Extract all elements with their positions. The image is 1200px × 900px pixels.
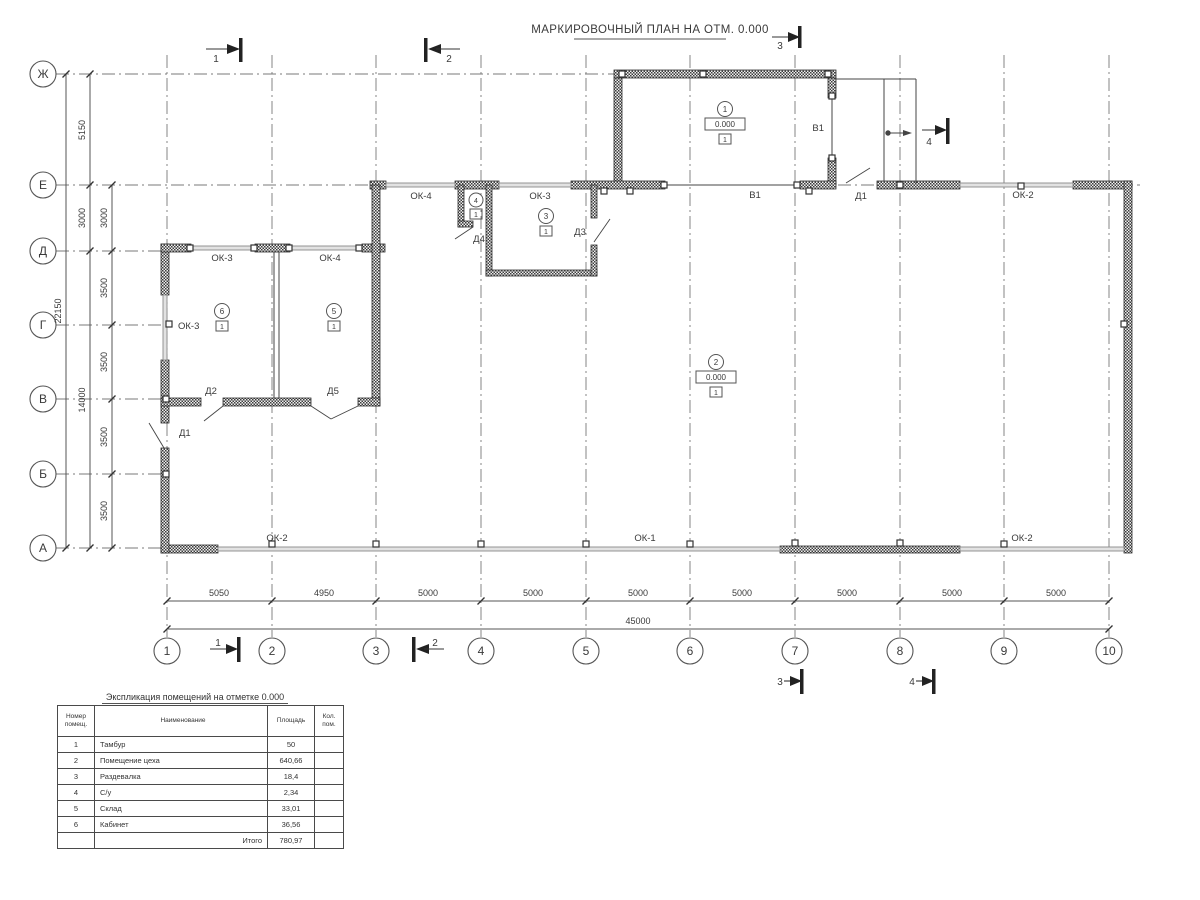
col-bubble-labels: 1 2 3 4 5 6 7 8 9 10 [164,644,1116,658]
explication-table: Номер помещ. Наименование Площадь Кол. п… [57,705,344,849]
label-d1-left: Д1 [179,428,191,439]
room-number: 6 [220,307,225,316]
label-d3: Д3 [574,227,586,238]
row-label: В [39,392,47,406]
section-number: 2 [432,638,438,649]
window-ok2-top [960,183,1073,187]
room-elevation: 0.000 [715,120,736,129]
room-number: 4 [474,198,478,205]
entrance-arrow [886,130,912,136]
label-ok3-room6: ОК-3 [211,253,232,264]
room-elevation: 0.000 [706,373,727,382]
floor-type: 1 [714,390,718,397]
drawing-title: МАРКИРОВОЧНЫЙ ПЛАН НА ОТМ. 0.000 [531,23,769,36]
label-ok1: ОК-1 [634,533,655,544]
dim-bay: 4950 [314,588,334,598]
label-d1-top: Д1 [855,191,867,202]
room-number: 2 [714,358,719,367]
table-header-row: Номер помещ. Наименование Площадь Кол. п… [58,706,344,737]
floor-type: 1 [723,137,727,144]
table-row: 6 Кабинет 36,56 [58,817,344,833]
table-row: 4 С/у 2,34 [58,785,344,801]
dim-left: 3500 [99,501,109,521]
label-ok2: ОК-2 [1012,190,1033,201]
col-label: 10 [1102,644,1116,658]
drawing-title-group: МАРКИРОВОЧНЫЙ ПЛАН НА ОТМ. 0.000 [531,23,769,39]
door-d1-top [846,168,870,183]
label-d4: Д4 [473,234,485,245]
explication-table-block: Экспликация помещений на отметке 0.000 Н… [57,692,333,849]
dim-left: 3000 [77,208,87,228]
label-v1-side: В1 [812,123,824,134]
label-v1-gate: В1 [749,190,761,201]
table-row: 3 Раздевалка 18,4 [58,769,344,785]
row-label: Д [39,244,47,258]
room-number: 3 [544,212,549,221]
row-label: А [39,541,47,555]
room-marker-3: 3 1 [539,209,554,237]
door-d3 [594,219,610,242]
door-d5-a [311,406,331,419]
dim-left: 3000 [99,208,109,228]
table-row: 2 Помещение цеха 640,66 [58,753,344,769]
window-bands [163,183,1124,551]
col-label: 4 [478,644,485,658]
dim-left: 3500 [99,352,109,372]
floor-type: 1 [474,212,478,219]
dim-bay: 5000 [418,588,438,598]
room-number: 5 [332,307,337,316]
door-d1-left [149,423,164,448]
section-number: 1 [215,638,221,649]
col-header-area: Площадь [268,706,315,737]
wall-posts [163,71,1127,547]
table-row: 5 Склад 33,01 [58,801,344,817]
section-mark-4-bottom: 4 [909,669,935,694]
col-label: 6 [687,644,694,658]
dim-bay: 5000 [837,588,857,598]
row-bubble-labels: Ж Е Д Г В Б А [37,67,48,555]
dimensions-left [63,71,116,552]
row-label: Е [39,178,47,192]
dimension-bottom-labels: 5050 4950 5000 5000 5000 5000 5000 5000 … [209,588,1066,626]
window-ok3-room6 [191,246,255,250]
section-mark-3-bottom: 3 [777,669,803,694]
total-value: 780,97 [268,833,315,849]
drawing-sheet: Ж Е Д Г В Б А 1 2 3 4 5 6 7 8 9 10 [0,0,1200,900]
total-label: Итого [95,833,268,849]
col-label: 7 [792,644,799,658]
explication-title-text: Экспликация помещений на отметке 0.000 [102,692,288,704]
dim-left: 3500 [99,427,109,447]
col-header-name: Наименование [95,706,268,737]
col-label: 2 [269,644,276,658]
label-ok3-left: ОК-3 [178,321,199,332]
dim-total-height: 22150 [53,298,63,323]
section-mark-2-bottom: 2 [412,637,444,662]
label-ok2-bottom-right: ОК-2 [1011,533,1032,544]
table-row: 1 Тамбур 50 [58,737,344,753]
section-mark-2-top: 2 [424,38,460,65]
row-label: Б [39,467,47,481]
dim-bay: 5000 [942,588,962,598]
room-marker-1: 1 0.000 1 [705,102,745,145]
section-mark-4-top: 4 [922,118,950,148]
window-ok4-room5 [290,246,362,250]
label-ok2-bottom-left: ОК-2 [266,533,287,544]
label-ok4-room5: ОК-4 [319,253,340,264]
floor-type: 1 [220,324,224,331]
dim-left: 5150 [77,120,87,140]
room-marker-6: 6 1 [215,304,230,332]
section-number: 3 [777,677,783,688]
section-mark-1-top: 1 [206,38,243,65]
dim-bay: 5000 [523,588,543,598]
window-ok4 [386,183,455,187]
col-label: 9 [1001,644,1008,658]
room-marker-5: 5 1 [327,304,342,332]
window-ok3 [499,183,571,187]
dim-bay: 5050 [209,588,229,598]
dimension-left-labels: 22150 5150 3000 14000 3000 3500 3500 350… [53,120,109,521]
dim-left: 3500 [99,278,109,298]
arrow-origin-dot [886,131,890,135]
label-d2: Д2 [205,386,217,397]
room-number: 1 [723,105,728,114]
col-label: 8 [897,644,904,658]
col-bubbles [154,638,1122,664]
section-number: 1 [213,54,219,65]
section-number: 3 [777,41,783,52]
door-d2 [204,406,223,421]
window-ok2-bottom-left [218,547,780,551]
col-header-number: Номер помещ. [58,706,95,737]
explication-title: Экспликация помещений на отметке 0.000 [57,692,333,702]
col-label: 3 [373,644,380,658]
floor-type: 1 [544,229,548,236]
section-mark-3-top: 3 [772,26,802,52]
dim-bay: 5000 [1046,588,1066,598]
door-d5-b [331,406,358,419]
col-header-qty: Кол. пом. [315,706,344,737]
section-number: 4 [926,137,932,148]
dim-bay: 5000 [628,588,648,598]
window-ok1-bottom-right [960,547,1124,551]
floor-type: 1 [332,324,336,331]
arrow-head [903,130,912,136]
col-label: 1 [164,644,171,658]
room-marker-2: 2 0.000 1 [696,355,736,398]
dim-total-width: 45000 [625,616,650,626]
dim-bay: 5000 [732,588,752,598]
door-d4 [455,227,473,239]
partition-room5-6 [274,252,279,398]
dimensions-bottom [164,598,1113,633]
walls [161,70,1132,553]
section-number: 2 [446,54,452,65]
col-label: 5 [583,644,590,658]
row-label: Г [40,318,47,332]
section-number: 4 [909,677,915,688]
row-label: Ж [37,67,48,81]
label-ok4: ОК-4 [410,191,431,202]
dim-left: 14000 [77,387,87,412]
label-d5: Д5 [327,386,339,397]
section-mark-1-bottom: 1 [210,637,241,662]
table-total-row: Итого 780,97 [58,833,344,849]
label-ok3: ОК-3 [529,191,550,202]
